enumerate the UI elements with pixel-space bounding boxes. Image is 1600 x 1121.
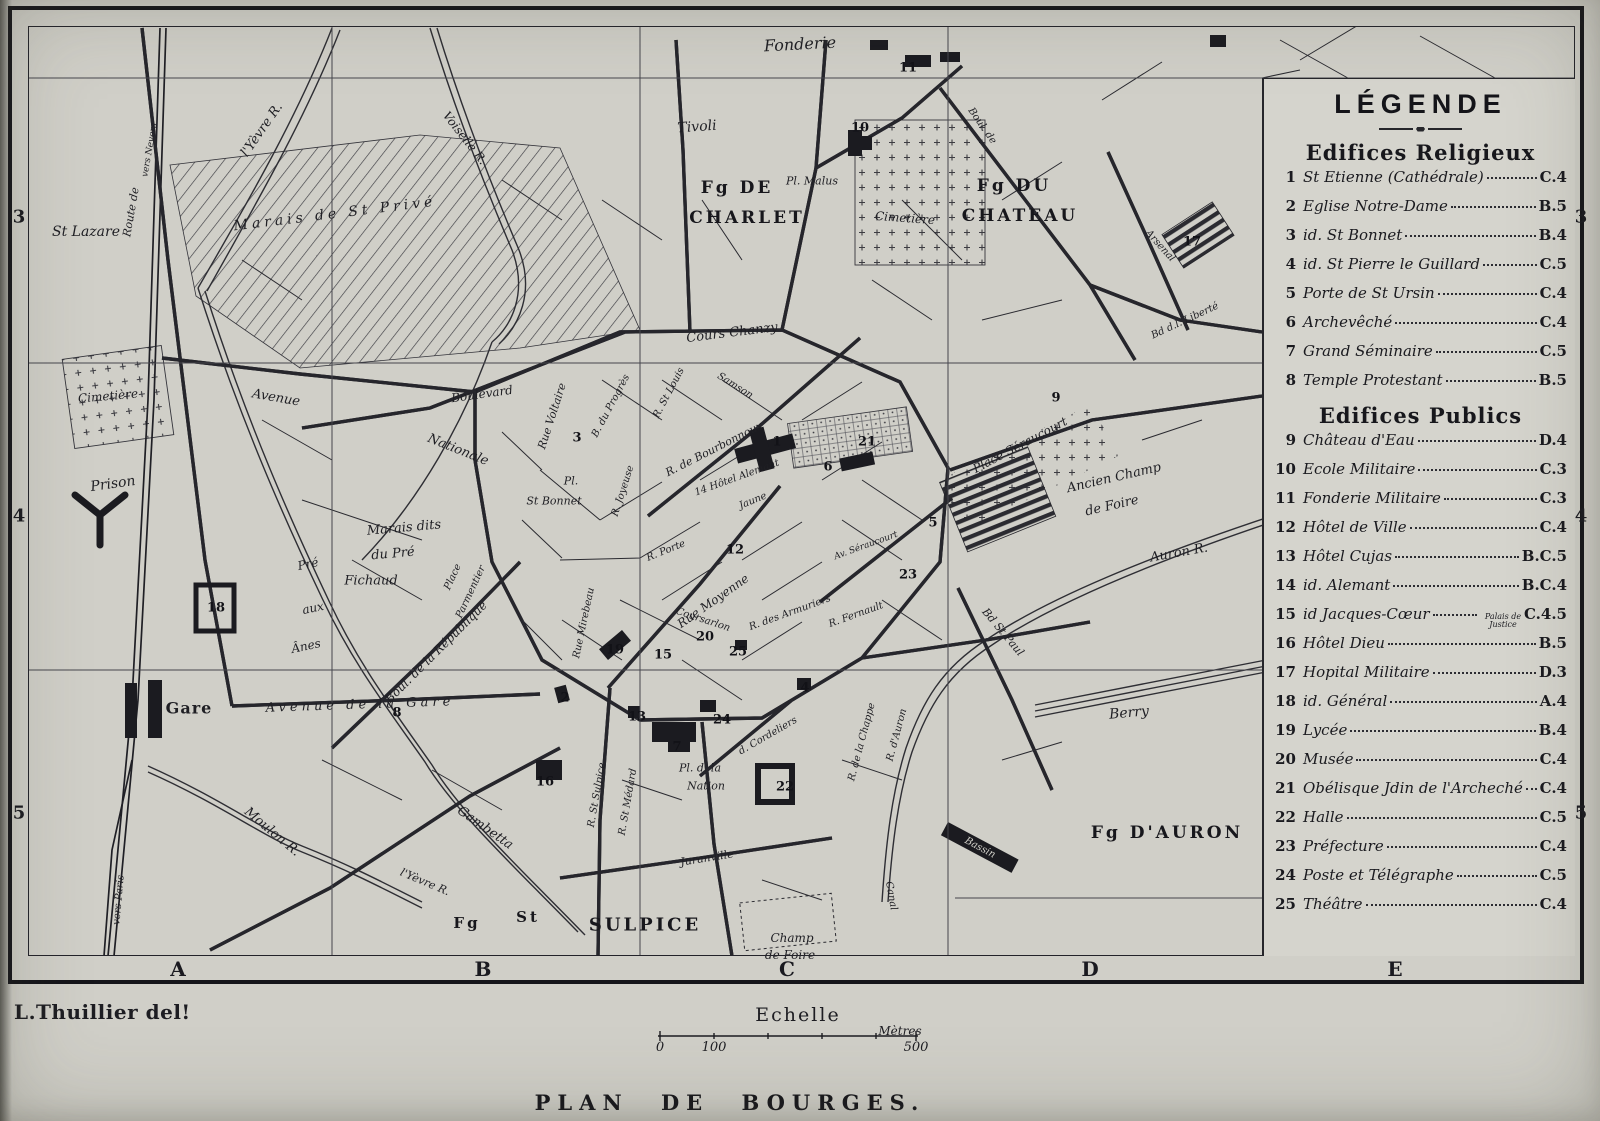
grid-row-label: 3 (1575, 207, 1588, 228)
map-sheet: FonderieTivoliFg DECHARLETPl. MalusCimet… (0, 0, 1600, 1121)
legend-item: 10Ecole MilitaireC.3 (1274, 460, 1567, 489)
legend-item-number: 24 (1274, 866, 1296, 884)
legend-item-leader (1387, 846, 1537, 848)
grid-column-label: D (1081, 957, 1098, 981)
legend-item-leader (1433, 614, 1477, 616)
legend-item-number: 3 (1274, 226, 1296, 244)
legend-item-label: Hôtel Cujas (1303, 547, 1392, 565)
legend-item-leader (1393, 585, 1518, 587)
legend-item-gridref: C.4 (1540, 518, 1567, 536)
legend-item-number: 15 (1274, 605, 1296, 623)
legend-item-leader (1388, 643, 1536, 645)
legend-item: 22HalleC.5 (1274, 808, 1567, 837)
grid-column-label: A (170, 957, 186, 981)
legend-section-heading: Edifices Publics (1274, 403, 1567, 428)
ornament-line (1428, 128, 1462, 130)
legend-item-label: Archevêché (1303, 313, 1392, 331)
grid-column-label: E (1387, 957, 1402, 981)
legend-item-gridref: C.4 (1540, 168, 1567, 186)
legend-item: 15id Jacques-CœurPalais de JusticeC.4.5 (1274, 605, 1567, 634)
legend-item: 7Grand SéminaireC.5 (1274, 342, 1567, 371)
legend-item-number: 2 (1274, 197, 1296, 215)
legend-item-gridref: B.5 (1539, 197, 1567, 215)
legend-item-number: 5 (1274, 284, 1296, 302)
legend-item-label: St Etienne (Cathédrale) (1303, 168, 1484, 186)
legend-item-leader (1390, 701, 1536, 703)
legend-item-label: Château d'Eau (1303, 431, 1415, 449)
legend-item-label: id. St Pierre le Guillard (1303, 255, 1480, 273)
legend-item-number: 1 (1274, 168, 1296, 186)
scale-tick-label: 0 (656, 1040, 664, 1055)
ornament-diamond-icon (1416, 127, 1425, 132)
legend-item-label: Poste et Télégraphe (1303, 866, 1454, 884)
legend-item-gridref: C.4 (1540, 750, 1567, 768)
legend-item: 21Obélisque Jdin de l'ArchechéC.4 (1274, 779, 1567, 808)
legend-item-gridref: C.3 (1540, 460, 1567, 478)
legend-item-number: 12 (1274, 518, 1296, 536)
legend-item: 11Fonderie MilitaireC.3 (1274, 489, 1567, 518)
legend-item: 12Hôtel de VilleC.4 (1274, 518, 1567, 547)
legend-item-label: Hôtel Dieu (1303, 634, 1385, 652)
legend-panel: LÉGENDE Edifices Religieux1St Etienne (C… (1262, 78, 1575, 956)
legend-item-leader (1366, 904, 1537, 906)
legend-item-gridref: C.4.5 (1524, 605, 1567, 623)
legend-item-gridref: A.4 (1540, 692, 1567, 710)
legend-item: 25ThéâtreC.4 (1274, 895, 1567, 924)
scale-tick-label: 100 (702, 1040, 727, 1055)
legend-item-label: Hopital Militaire (1303, 663, 1430, 681)
grid-row-label: 5 (13, 803, 26, 824)
scale-unit-label: Mètres (878, 1024, 921, 1038)
legend-item: 13Hôtel CujasB.C.5 (1274, 547, 1567, 576)
legend-item-leader (1451, 206, 1536, 208)
legend-item-note: Palais de Justice (1482, 613, 1524, 630)
legend-item-leader (1446, 380, 1536, 382)
grid-column-label: B (475, 957, 492, 981)
legend-item: 18id. GénéralA.4 (1274, 692, 1567, 721)
legend-item: 2Eglise Notre-DameB.5 (1274, 197, 1567, 226)
legend-item-label: id. Alemant (1303, 576, 1390, 594)
legend-item-number: 19 (1274, 721, 1296, 739)
legend-title: LÉGENDE (1274, 89, 1567, 120)
cartographer-credit: L.Thuillier del! (14, 1000, 191, 1024)
legend-item-number: 7 (1274, 342, 1296, 360)
legend-item: 4id. St Pierre le GuillardC.5 (1274, 255, 1567, 284)
legend-item-gridref: C.4 (1540, 779, 1567, 797)
legend-item: 20MuséeC.4 (1274, 750, 1567, 779)
legend-item-label: Halle (1303, 808, 1344, 826)
grid-row-label: 4 (1575, 506, 1588, 527)
ornament-line (1379, 128, 1413, 130)
legend-item: 16Hôtel DieuB.5 (1274, 634, 1567, 663)
legend-sections: Edifices Religieux1St Etienne (Cathédral… (1274, 140, 1567, 924)
legend-item-leader (1457, 875, 1537, 877)
legend-item-number: 20 (1274, 750, 1296, 768)
legend-item-leader (1395, 322, 1536, 324)
legend-item-label: Lycée (1303, 721, 1347, 739)
legend-item: 8Temple ProtestantB.5 (1274, 371, 1567, 400)
legend-item: 24Poste et TélégrapheC.5 (1274, 866, 1567, 895)
legend-item-leader (1433, 672, 1536, 674)
legend-item-gridref: C.5 (1540, 808, 1567, 826)
legend-item-gridref: C.5 (1540, 866, 1567, 884)
legend-item-leader (1410, 527, 1537, 529)
legend-item-gridref: D.3 (1539, 663, 1567, 681)
legend-item-gridref: B.4 (1539, 721, 1567, 739)
legend-item-leader (1483, 264, 1537, 266)
grid-column-label: C (779, 957, 795, 981)
legend-item-gridref: C.4 (1540, 895, 1567, 913)
legend-item-label: Hôtel de Ville (1303, 518, 1407, 536)
legend-item-leader (1444, 498, 1537, 500)
legend-item-gridref: B.4 (1539, 226, 1567, 244)
legend-item-leader (1405, 235, 1535, 237)
legend-item-leader (1436, 351, 1537, 353)
legend-item-gridref: B.C.5 (1522, 547, 1567, 565)
legend-item-label: Porte de St Ursin (1303, 284, 1435, 302)
legend-item-number: 25 (1274, 895, 1296, 913)
legend-item-number: 23 (1274, 837, 1296, 855)
legend-item-number: 22 (1274, 808, 1296, 826)
legend-item-number: 14 (1274, 576, 1296, 594)
legend-item-leader (1438, 293, 1537, 295)
page-title: PLAN DE BOURGES. (430, 1090, 1030, 1115)
legend-item-number: 9 (1274, 431, 1296, 449)
legend-item-label: Musée (1303, 750, 1353, 768)
grid-row-label: 3 (13, 207, 26, 228)
legend-item-label: Ecole Militaire (1303, 460, 1415, 478)
legend-item-gridref: B.C.4 (1522, 576, 1567, 594)
legend-item-leader (1526, 788, 1537, 790)
legend-item-label: id. St Bonnet (1303, 226, 1402, 244)
legend-item-number: 6 (1274, 313, 1296, 331)
legend-item-leader (1356, 759, 1536, 761)
legend-item-gridref: C.5 (1540, 342, 1567, 360)
legend-item-leader (1418, 469, 1536, 471)
legend-item-leader (1347, 817, 1537, 819)
legend-item-label: Eglise Notre-Dame (1303, 197, 1448, 215)
legend-item-number: 17 (1274, 663, 1296, 681)
legend-ornament (1274, 122, 1567, 136)
legend-item: 14id. AlemantB.C.4 (1274, 576, 1567, 605)
legend-item: 3id. St BonnetB.4 (1274, 226, 1567, 255)
legend-item: 17Hopital MilitaireD.3 (1274, 663, 1567, 692)
legend-item-label: Fonderie Militaire (1303, 489, 1441, 507)
scale-tick-label: 500 (904, 1040, 929, 1055)
legend-item-number: 4 (1274, 255, 1296, 273)
legend-item-label: Temple Protestant (1303, 371, 1443, 389)
grid-row-label: 4 (13, 506, 26, 527)
grid-row-label: 5 (1575, 803, 1588, 824)
legend-item-label: id. Général (1303, 692, 1387, 710)
legend-item-label: Grand Séminaire (1303, 342, 1433, 360)
legend-item-label: Préfecture (1303, 837, 1384, 855)
legend-item-leader (1418, 440, 1536, 442)
legend-item: 1St Etienne (Cathédrale)C.4 (1274, 168, 1567, 197)
legend-item: 5Porte de St UrsinC.4 (1274, 284, 1567, 313)
legend-item-leader (1350, 730, 1535, 732)
legend-section-heading: Edifices Religieux (1274, 140, 1567, 165)
legend-item-number: 18 (1274, 692, 1296, 710)
legend-item-number: 8 (1274, 371, 1296, 389)
legend-item: 6ArchevêchéC.4 (1274, 313, 1567, 342)
legend-item-gridref: B.5 (1539, 371, 1567, 389)
legend-item-label: Obélisque Jdin de l'Archeché (1303, 779, 1523, 797)
legend-item-number: 16 (1274, 634, 1296, 652)
legend-item: 9Château d'EauD.4 (1274, 431, 1567, 460)
legend-item: 23PréfectureC.4 (1274, 837, 1567, 866)
legend-item-gridref: B.5 (1539, 634, 1567, 652)
legend-item-gridref: C.4 (1540, 313, 1567, 331)
legend-item-gridref: C.3 (1540, 489, 1567, 507)
legend-item-leader (1395, 556, 1519, 558)
legend-item-gridref: D.4 (1539, 431, 1567, 449)
legend-item-label: id Jacques-Cœur (1303, 605, 1430, 623)
legend-item-label: Théâtre (1303, 895, 1363, 913)
legend-item: 19LycéeB.4 (1274, 721, 1567, 750)
legend-item-gridref: C.5 (1540, 255, 1567, 273)
legend-item-gridref: C.4 (1540, 837, 1567, 855)
legend-item-number: 21 (1274, 779, 1296, 797)
legend-item-number: 10 (1274, 460, 1296, 478)
legend-item-number: 11 (1274, 489, 1296, 507)
legend-item-number: 13 (1274, 547, 1296, 565)
legend-item-leader (1487, 177, 1537, 179)
legend-item-gridref: C.4 (1540, 284, 1567, 302)
